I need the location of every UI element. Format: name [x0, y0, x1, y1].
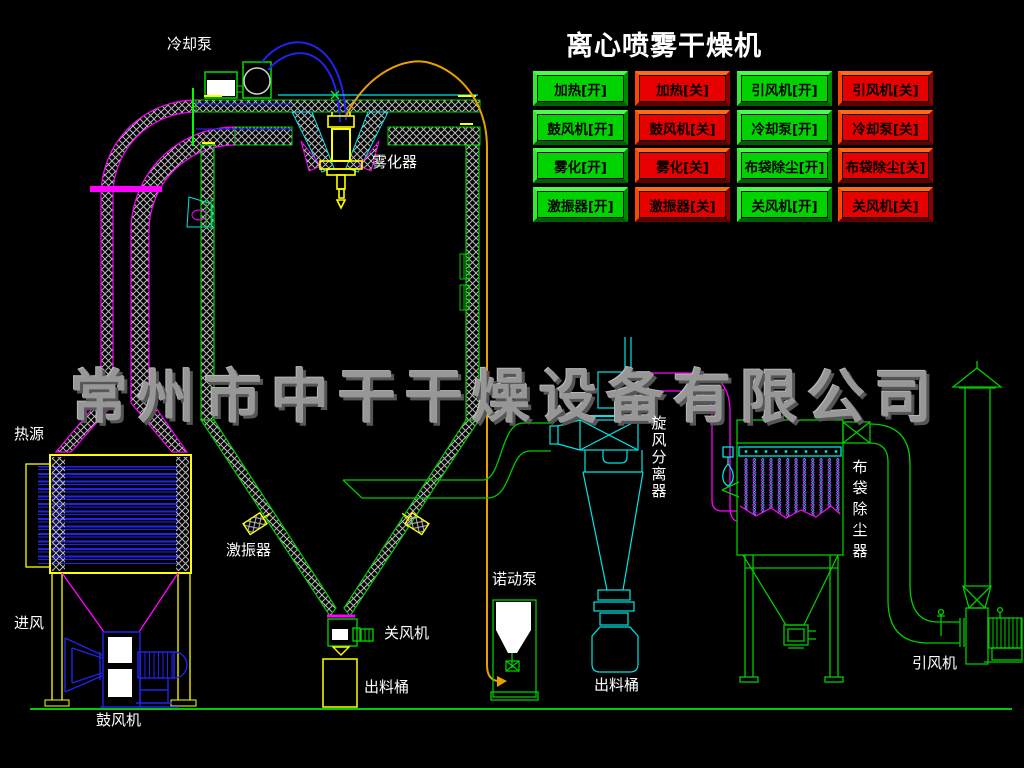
button-id-fan-off[interactable]: 引风机[关] — [838, 71, 933, 106]
button-heat-on[interactable]: 加热[开] — [533, 71, 628, 106]
page-title: 离心喷雾干燥机 — [566, 24, 762, 63]
label-chamber-bucket: 出料桶 — [364, 679, 409, 696]
chamber-discharge-bucket — [323, 659, 357, 707]
button-blower-off[interactable]: 鼓风机[关] — [635, 110, 730, 145]
filter-bags — [740, 458, 840, 518]
button-vibrator-off[interactable]: 激振器[关] — [635, 187, 730, 222]
button-vibrator-on[interactable]: 激振器[开] — [533, 187, 628, 222]
button-cooling-pump-on[interactable]: 冷却泵[开] — [737, 110, 832, 145]
pump-rotor — [244, 68, 270, 94]
button-atomize-off[interactable]: 雾化[关] — [635, 148, 730, 183]
tube-sheet-bolts — [745, 450, 838, 453]
fan-motor — [988, 618, 1022, 648]
cooling-pump-unit — [204, 62, 271, 98]
label-cyclone-bucket: 出料桶 — [594, 677, 639, 694]
damper-valve — [937, 614, 945, 636]
bag-filter-unit — [722, 420, 870, 682]
exhaust-stack — [953, 361, 1001, 586]
induced-draft-fan-unit — [963, 586, 1023, 664]
label-bag-filter: 布袋除尘器 — [851, 459, 868, 564]
button-rotary-valve-on[interactable]: 关风机[开] — [737, 187, 832, 222]
label-cyclone: 旋风分离器 — [650, 415, 667, 500]
bagfilter-outlet-duct — [870, 424, 964, 647]
label-air-inlet: 进风 — [14, 615, 44, 632]
button-atomize-on[interactable]: 雾化[开] — [533, 148, 628, 183]
label-blower: 鼓风机 — [96, 712, 141, 729]
rotary-valve-unit — [328, 619, 373, 655]
pipe-flange-bar — [90, 186, 162, 192]
button-heat-off[interactable]: 加热[关] — [635, 71, 730, 106]
label-peristaltic-pump: 诺动泵 — [492, 571, 537, 588]
company-watermark: 常州市中干干燥设备有限公司 — [70, 350, 941, 434]
pulse-jet — [723, 447, 734, 486]
label-vibrator: 激振器 — [226, 542, 271, 559]
button-bag-filter-on[interactable]: 布袋除尘[开] — [737, 148, 832, 183]
label-rotary-valve: 关风机 — [384, 625, 429, 642]
button-bag-filter-off[interactable]: 布袋除尘[关] — [838, 148, 933, 183]
hmi-screen: 常州市中干干燥设备有限公司 冷却泵 雾化器 热源 进风 鼓风机 激振器 关风机 … — [0, 0, 1024, 768]
button-cooling-pump-off[interactable]: 冷却泵[关] — [838, 110, 933, 145]
label-heat-source: 热源 — [14, 426, 44, 443]
button-blower-on[interactable]: 鼓风机[开] — [533, 110, 628, 145]
cyclone-discharge-bottle — [592, 627, 638, 672]
blower-motor — [138, 652, 174, 678]
blower-unit — [65, 632, 187, 707]
label-id-fan: 引风机 — [912, 655, 957, 672]
label-cooling-pump: 冷却泵 — [167, 36, 212, 53]
button-rotary-valve-off[interactable]: 关风机[关] — [838, 187, 933, 222]
button-id-fan-on[interactable]: 引风机[开] — [737, 71, 832, 106]
label-atomizer: 雾化器 — [372, 154, 417, 171]
